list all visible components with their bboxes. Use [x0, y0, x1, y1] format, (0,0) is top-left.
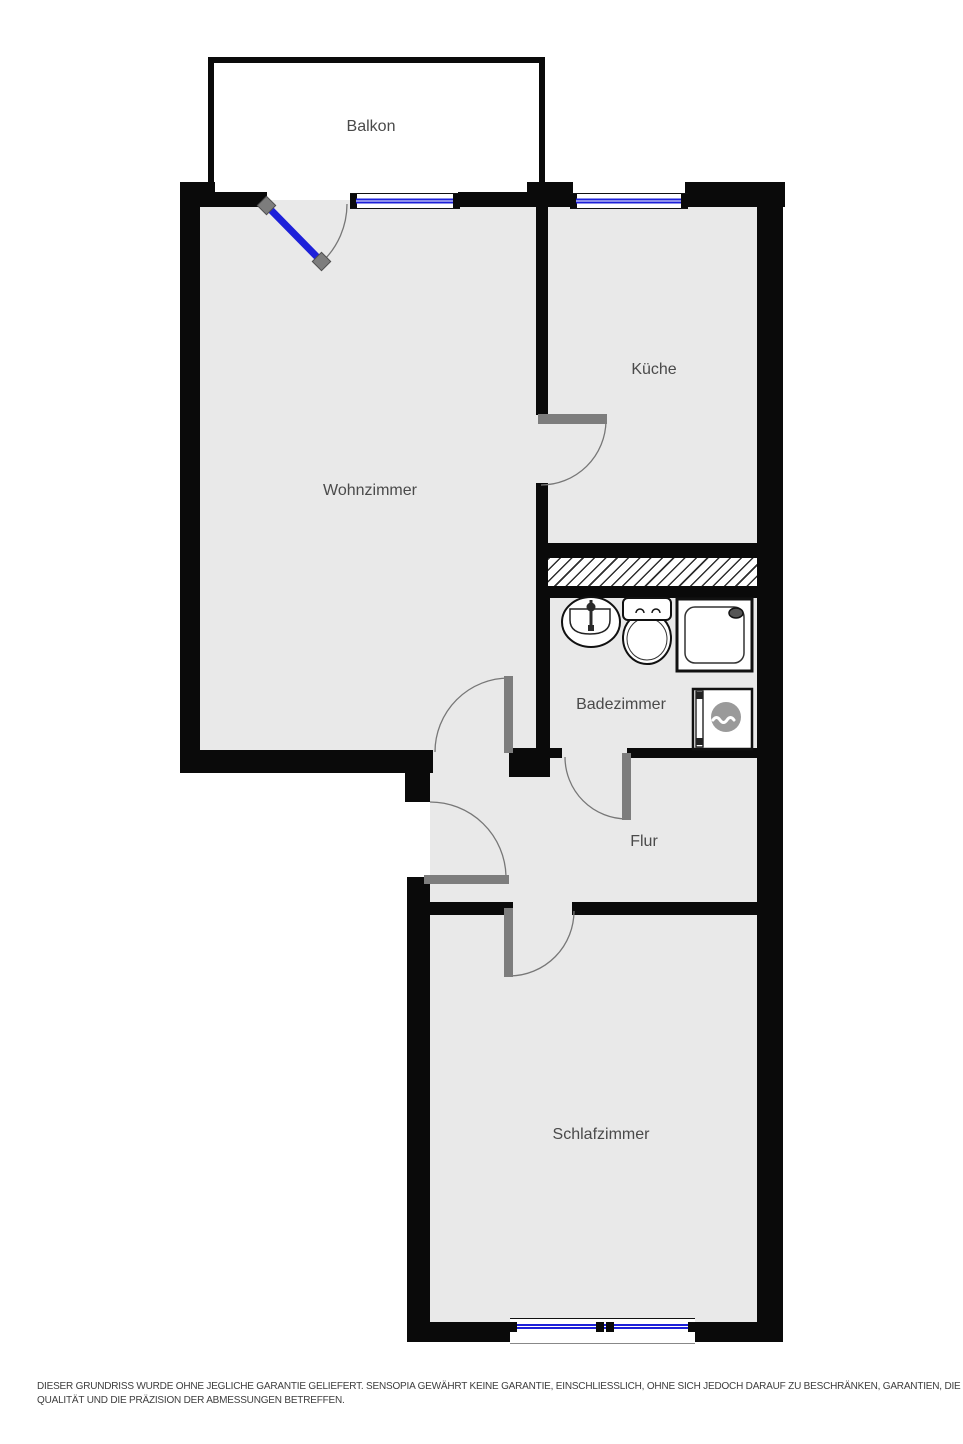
- wall-badezimmer-left: [536, 598, 550, 750]
- wall-badezimmer-bottom-right: [627, 748, 757, 758]
- entrance-opening: [405, 802, 430, 877]
- wall-schlafzimmer-bottom-right: [695, 1322, 783, 1342]
- window-cap-right: [688, 1322, 695, 1332]
- wall-divider-wz-kueche-lower: [536, 483, 548, 598]
- disclaimer-text: DIESER GRUNDRISS WURDE OHNE JEGLICHE GAR…: [37, 1380, 963, 1408]
- window-cap-left: [510, 1322, 517, 1332]
- room-label-flur: Flur: [630, 833, 658, 851]
- window-glass: [576, 199, 682, 204]
- disclaimer-line-2: QUALITÄT UND DIE PRÄZISION DER ABMESSUNG…: [37, 1394, 963, 1408]
- window-mullion-left: [596, 1322, 604, 1332]
- wall-badezimmer-bottom-left: [550, 748, 562, 758]
- room-badezimmer: [540, 590, 760, 755]
- wall-wohnzimmer-bottom: [180, 750, 433, 773]
- wall-junction-flur: [509, 748, 550, 777]
- room-label-badezimmer: Badezimmer: [576, 696, 666, 714]
- wall-top-under-balcony: [215, 192, 267, 207]
- window-wohnzimmer: [350, 193, 460, 209]
- wall-left-upper: [180, 182, 200, 773]
- wall-schlafzimmer-top-left: [428, 902, 513, 915]
- room-label-wohnzimmer: Wohnzimmer: [323, 482, 417, 500]
- wall-schlafzimmer-top-right: [572, 902, 757, 915]
- window-glass: [356, 199, 454, 204]
- disclaimer-line-1: DIESER GRUNDRISS WURDE OHNE JEGLICHE GAR…: [37, 1380, 963, 1394]
- room-label-balkon: Balkon: [347, 118, 396, 136]
- floorplan-canvas: Balkon Wohnzimmer Küche Badezimmer Flur …: [0, 0, 963, 1444]
- wall-top-junction-block: [527, 182, 573, 207]
- window-mullion-right: [606, 1322, 614, 1332]
- wall-right: [757, 182, 783, 1342]
- room-schlafzimmer: [420, 900, 760, 1325]
- room-wohnzimmer: [195, 200, 545, 755]
- wall-kueche-bottom: [536, 543, 757, 558]
- wall-left-lower: [407, 877, 430, 1342]
- window-cap-right: [453, 194, 460, 208]
- window-kueche: [570, 193, 688, 209]
- wall-divider-wz-kueche-upper: [536, 207, 548, 415]
- window-schlafzimmer: [510, 1318, 695, 1344]
- wall-entry-stub: [405, 773, 430, 802]
- window-cap-right: [681, 194, 688, 208]
- wall-schlafzimmer-bottom-left: [407, 1322, 510, 1342]
- room-label-kueche: Küche: [631, 361, 676, 379]
- duct-shaft-hatched: [548, 558, 757, 586]
- wall-badezimmer-top: [536, 586, 757, 598]
- room-label-schlafzimmer: Schlafzimmer: [553, 1126, 650, 1144]
- room-flur: [420, 745, 760, 920]
